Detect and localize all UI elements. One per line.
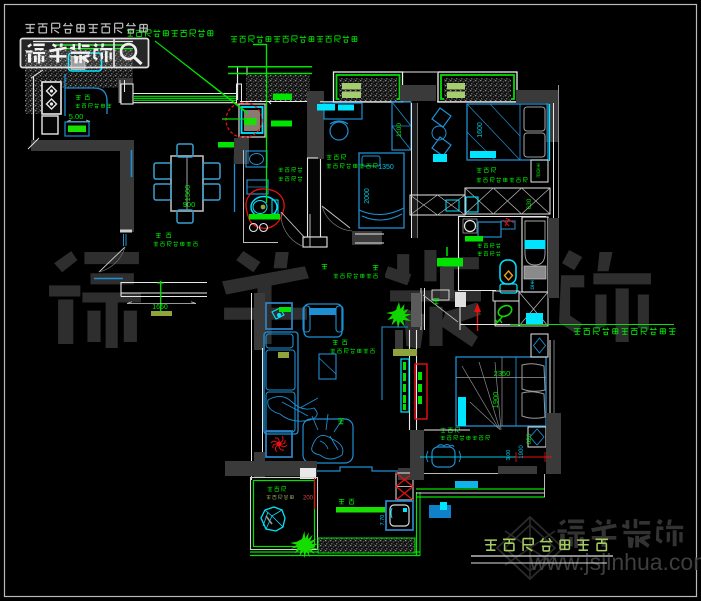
svg-text:7.70: 7.70 [380, 515, 386, 526]
svg-text:1350: 1350 [378, 164, 394, 171]
svg-text:2000: 2000 [364, 188, 371, 204]
svg-text:1100: 1100 [396, 123, 403, 137]
svg-text:3.00: 3.00 [506, 450, 512, 461]
svg-text:1900: 1900 [519, 445, 525, 459]
svg-text:5.00: 5.00 [69, 112, 84, 121]
svg-text:1900: 1900 [491, 392, 500, 409]
svg-text:900: 900 [183, 200, 196, 209]
svg-text:620: 620 [526, 433, 533, 444]
svg-text:630: 630 [526, 198, 533, 209]
svg-text:www.jsjinhua.com: www.jsjinhua.com [529, 549, 701, 575]
svg-text:200: 200 [303, 496, 314, 502]
svg-text:1650: 1650 [152, 304, 168, 311]
svg-text:1600: 1600 [477, 122, 484, 138]
svg-text:1500: 1500 [183, 185, 192, 202]
svg-text:2350: 2350 [494, 369, 511, 378]
